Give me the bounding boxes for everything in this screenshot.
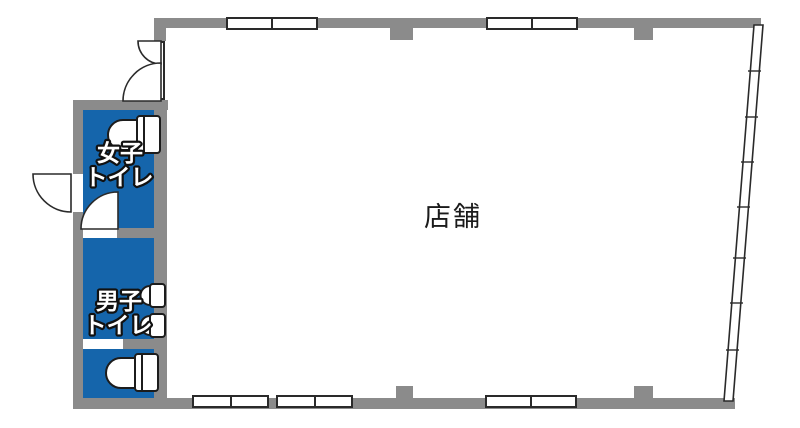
floor-plan: 女子 トイレ 男子 トイレ 店舗 xyxy=(0,0,800,428)
womens-toilet-label-line2: トイレ xyxy=(85,164,154,190)
urinal-icon xyxy=(141,284,166,307)
mens-toilet-label-line2: トイレ xyxy=(84,312,153,338)
urinal-panel xyxy=(150,284,165,307)
toilet-icon xyxy=(106,354,158,391)
door-swing-arc-icon xyxy=(123,63,161,101)
entrance-double-door xyxy=(123,41,161,101)
store-room-label: 店舗 xyxy=(393,195,513,234)
toilet-bowl xyxy=(106,358,135,388)
door-swing-arc-icon xyxy=(81,192,118,229)
slanted-window-band-icon xyxy=(724,25,763,401)
door-swing-arc-icon xyxy=(33,174,71,212)
womens-toilet-label-line1: 女子 xyxy=(97,140,143,166)
toilet-tank xyxy=(135,354,158,391)
mens-toilet-label-line1: 男子 xyxy=(96,288,142,314)
window-band xyxy=(724,25,763,401)
door-swing-arc-icon xyxy=(138,41,161,64)
